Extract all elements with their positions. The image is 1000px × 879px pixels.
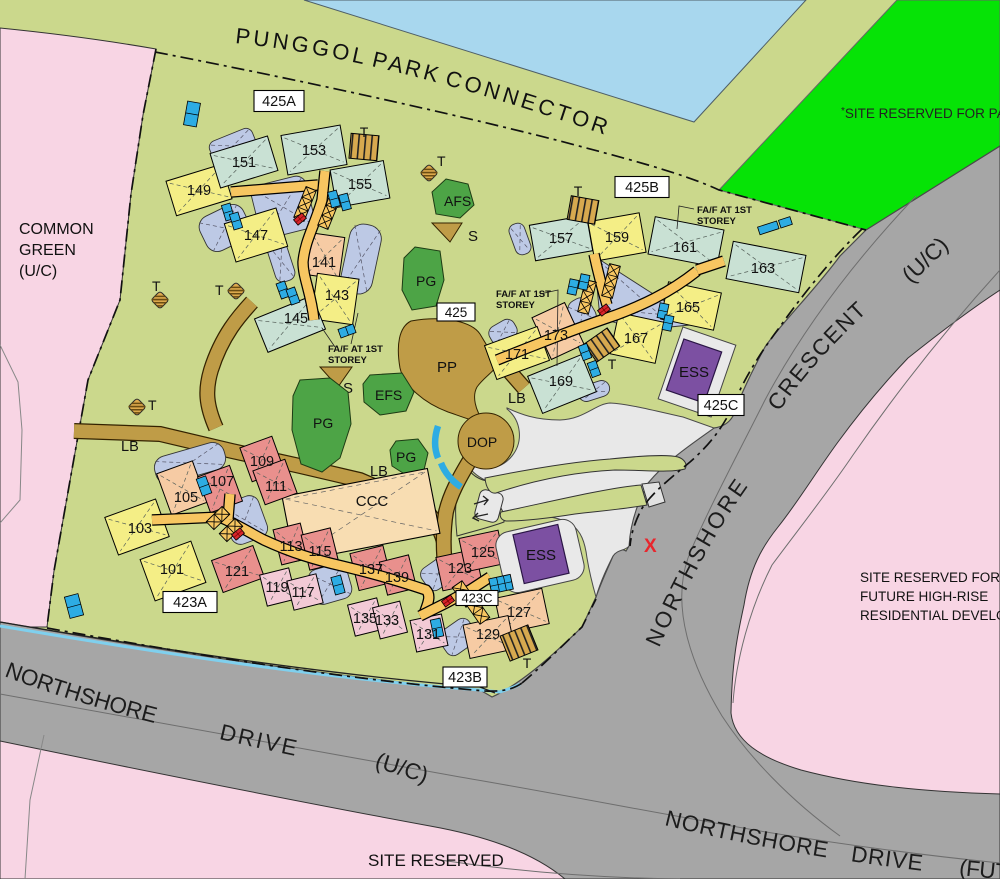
svg-text:423C: 423C <box>461 591 492 606</box>
svg-text:147: 147 <box>244 228 268 244</box>
svg-text:123: 123 <box>448 561 472 577</box>
svg-text:(FUT: (FUT <box>958 855 1000 879</box>
svg-text:LB: LB <box>121 439 139 455</box>
svg-text:161: 161 <box>673 240 697 256</box>
svg-text:127: 127 <box>507 605 531 621</box>
svg-text:T: T <box>437 153 446 169</box>
svg-text:STOREY: STOREY <box>697 216 737 227</box>
svg-text:T: T <box>152 278 161 294</box>
svg-text:135: 135 <box>353 611 377 627</box>
svg-text:173: 173 <box>544 328 568 344</box>
svg-text:423A: 423A <box>173 595 207 611</box>
svg-text:149: 149 <box>187 183 211 199</box>
svg-text:119: 119 <box>265 580 288 596</box>
svg-text:SITE RESERVED FOR: SITE RESERVED FOR <box>860 570 1000 585</box>
svg-text:T: T <box>215 282 224 298</box>
svg-text:101: 101 <box>160 562 184 578</box>
svg-text:145: 145 <box>284 311 308 327</box>
svg-text:139: 139 <box>385 570 409 586</box>
svg-text:PP: PP <box>437 359 457 376</box>
svg-text:FA/F AT 1ST: FA/F AT 1ST <box>697 205 752 216</box>
svg-text:X: X <box>644 536 657 557</box>
svg-text:ESS: ESS <box>526 547 556 564</box>
svg-text:RESIDENTIAL DEVELOP: RESIDENTIAL DEVELOP <box>860 608 1000 623</box>
svg-text:T: T <box>608 356 617 372</box>
svg-text:FA/F AT 1ST: FA/F AT 1ST <box>328 344 383 355</box>
svg-text:169: 169 <box>549 374 573 390</box>
svg-text:117: 117 <box>291 585 314 601</box>
svg-text:157: 157 <box>549 231 573 247</box>
svg-text:*SITE RESERVED FOR PA: *SITE RESERVED FOR PA <box>841 106 1000 121</box>
svg-text:LB: LB <box>508 391 526 407</box>
svg-text:113: 113 <box>279 539 302 555</box>
svg-text:137: 137 <box>359 562 383 578</box>
svg-text:107: 107 <box>210 474 234 490</box>
svg-text:ESS: ESS <box>679 364 709 381</box>
svg-text:103: 103 <box>128 521 152 537</box>
svg-text:425A: 425A <box>262 94 296 110</box>
svg-text:165: 165 <box>676 300 700 316</box>
svg-text:111: 111 <box>265 479 287 495</box>
svg-text:PG: PG <box>396 449 416 465</box>
svg-text:CCC: CCC <box>356 493 389 510</box>
svg-text:109: 109 <box>250 454 274 470</box>
svg-text:105: 105 <box>174 490 198 506</box>
svg-text:143: 143 <box>325 288 349 304</box>
svg-text:T: T <box>360 124 369 140</box>
svg-text:STOREY: STOREY <box>496 300 536 311</box>
svg-text:PG: PG <box>416 273 436 289</box>
svg-text:423B: 423B <box>448 670 482 686</box>
svg-text:153: 153 <box>302 143 326 159</box>
svg-text:133: 133 <box>375 613 399 629</box>
svg-text:S: S <box>468 228 478 245</box>
svg-text:FUTURE HIGH-RISE: FUTURE HIGH-RISE <box>860 589 988 604</box>
svg-text:125: 125 <box>471 545 495 561</box>
svg-text:425B: 425B <box>625 180 659 196</box>
svg-text:COMMON: COMMON <box>19 221 94 238</box>
svg-text:AFS: AFS <box>444 193 471 209</box>
svg-text:EFS: EFS <box>375 387 402 403</box>
svg-text:SITE RESERVED: SITE RESERVED <box>368 851 504 870</box>
svg-text:T: T <box>523 655 532 671</box>
svg-text:PG: PG <box>313 415 333 431</box>
svg-text:171: 171 <box>505 347 529 363</box>
svg-text:(U/C): (U/C) <box>19 263 57 280</box>
svg-text:DOP: DOP <box>467 434 497 450</box>
svg-text:155: 155 <box>348 177 372 193</box>
svg-text:T: T <box>148 397 157 413</box>
svg-text:GREEN: GREEN <box>19 242 76 259</box>
svg-text:T: T <box>574 183 583 199</box>
svg-text:FA/F AT 1ST: FA/F AT 1ST <box>496 289 551 300</box>
svg-text:151: 151 <box>232 155 256 171</box>
svg-text:STOREY: STOREY <box>328 355 368 366</box>
svg-text:115: 115 <box>308 544 331 560</box>
svg-text:159: 159 <box>605 230 629 246</box>
svg-text:425: 425 <box>445 305 468 320</box>
svg-text:425C: 425C <box>704 398 739 414</box>
svg-text:131: 131 <box>416 627 440 643</box>
svg-text:121: 121 <box>225 564 249 580</box>
svg-text:129: 129 <box>476 627 500 643</box>
svg-text:167: 167 <box>624 331 648 347</box>
svg-text:163: 163 <box>751 261 775 277</box>
svg-text:141: 141 <box>312 255 336 271</box>
